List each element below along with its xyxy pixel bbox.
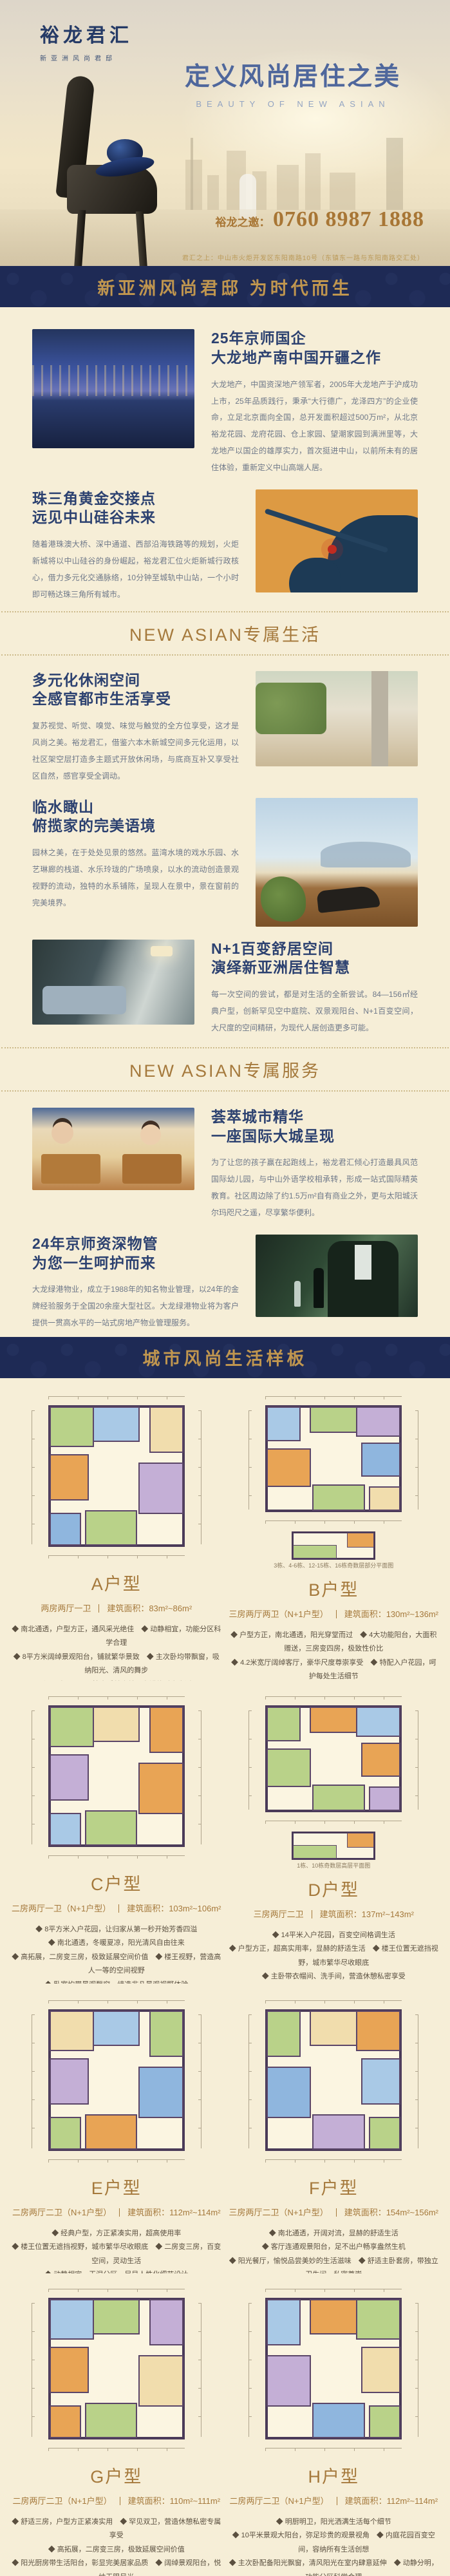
floorplan-card-g: G户型 二房两厅二卫（N+1户型）建筑面积：110m²~111m² ◆ 舒适三房… [8, 2284, 225, 2576]
floorplan-image [26, 2284, 207, 2456]
floorplan-spec: 二房两厅一卫（N+1户型）建筑面积：103m²~106m² [8, 1902, 225, 1914]
floorplan-name: C户型 [8, 1870, 225, 1895]
floorplan-mini-image [292, 1531, 375, 1560]
hero-section: 裕龙君汇 新亚洲风尚君邸 定义风尚居住之美 BEAUTY OF NEW ASIA… [0, 0, 450, 266]
floorplan-card-c: C户型 二房两厅一卫（N+1户型）建筑面积：103m²~106m² ◆ 8平方米… [8, 1691, 225, 1984]
floorplan-name: H户型 [225, 2463, 443, 2488]
floorplan-spec: 二房两厅二卫（N+1户型）建筑面积：110m²~111m² [8, 2494, 225, 2506]
floorplan-name: F户型 [225, 2174, 443, 2199]
photo-courtyard [256, 671, 418, 766]
section-property-service: 24年京师资深物管为您一生呵护而来 大龙绿港物业，成立于1988年的知名物业管理… [0, 1222, 450, 1332]
floorplan-row-cd: C户型 二房两厅一卫（N+1户型）建筑面积：103m²~106m² ◆ 8平方米… [0, 1681, 450, 1984]
floorplan-image [243, 1995, 424, 2168]
photo-children-classroom [32, 1108, 194, 1190]
divider-life: NEW ASIAN专属生活 [0, 603, 450, 658]
floorplan-name: D户型 [225, 1876, 443, 1901]
floorplan-features: ◆ 明厨明卫，阳光洒满生活每个细节◆ 10平米景观大阳台，弥足珍贵的观景视角 ◆… [225, 2515, 443, 2576]
floorplan-row-gh: G户型 二房两厅二卫（N+1户型）建筑面积：110m²~111m² ◆ 舒适三房… [0, 2273, 450, 2576]
region-map-image [256, 489, 418, 592]
section-title: 荟萃城市精华一座国际大城呈现 [211, 1108, 418, 1146]
section-body: 为了让您的孩子赢在起跑线上，裕龙君汇倾心打造最具风范国际幼儿园，与中山外语学校相… [211, 1155, 418, 1221]
divider-title: NEW ASIAN专属生活 [0, 612, 450, 654]
banner-text: 城市风尚生活样板 [143, 1345, 308, 1370]
section-landscape: 临水瞰山俯揽家的完美语境 园林之美，在于处处见景的悠然。蓝湾水境的戏水乐园、水艺… [0, 785, 450, 927]
floorplan-row-ef: E户型 二房两厅二卫（N+1户型）建筑面积：112m²~114m² ◆ 经典户型… [0, 1984, 450, 2273]
floorplan-card-d: 1栋、10栋奇数层高层平面图 D户型 三房两厅二卫建筑面积：137m²~143m… [225, 1691, 443, 1984]
hero-subtitle: BEAUTY OF NEW ASIAN [164, 99, 422, 109]
photo-city-night [32, 329, 194, 448]
floorplan-image [26, 1995, 207, 2168]
section-space: N+1百变舒居空间演绎新亚洲居住智慧 每一次空间的尝试，都是对生活的全新尝试。8… [0, 927, 450, 1037]
floorplan-features: ◆ 户型方正，南北通透，阳光穿堂而过 ◆ 4大功能阳台，大面积赠送，三房变四房，… [225, 1629, 443, 1681]
floorplan-features: ◆ 南北通透，户型方正，通风采光绝佳 ◆ 动静相宜，功能分区科学合理◆ 8平方米… [8, 1623, 225, 1681]
floorplan-mini-image [292, 1832, 375, 1860]
photo-balcony-view [256, 798, 418, 927]
poster-page: 裕龙君汇 新亚洲风尚君邸 定义风尚居住之美 BEAUTY OF NEW ASIA… [0, 0, 450, 2576]
brand-tagline: 新亚洲风尚君邸 [40, 53, 133, 62]
floorplan-features: ◆ 舒适三房，户型方正紧凑实用 ◆ 罕见双卫，营造休憩私密专属享受◆ 高拓展，二… [8, 2515, 225, 2576]
section-title: 24年京师资深物管为您一生呵护而来 [32, 1235, 239, 1273]
section-body: 园林之美，在于处处见景的悠然。蓝湾水境的戏水乐园、水艺琳廊的栈道、水乐玲珑的广场… [32, 845, 239, 911]
floorplan-name: E户型 [8, 2174, 225, 2199]
phone-block: 裕龙之邀： 0760 8987 1888 [216, 207, 424, 232]
floorplan-features: ◆ 8平方米入户花园，让归家从第一秒开始芳香四溢◆ 南北通透，冬暖夏凉，阳光清风… [8, 1923, 225, 1984]
banner-new-asian: 新亚洲风尚君邸 为时代而生 [0, 266, 450, 307]
phone-number: 0760 8987 1888 [273, 207, 424, 231]
floorplan-card-a: A户型 两房两厅一卫建筑面积：83m²~86m² ◆ 南北通透，户型方正，通风采… [8, 1391, 225, 1681]
floorplan-card-h: H户型 二房两厅二卫（N+1户型）建筑面积：112m²~114m² ◆ 明厨明卫… [225, 2284, 443, 2576]
map-location-dot [328, 545, 337, 554]
floorplan-card-b: 3栋、4-6栋、12-15栋、16栋奇数层部分平面图 B户型 三房两厅两卫（N+… [225, 1391, 443, 1681]
banner-text: 新亚洲风尚君邸 为时代而生 [97, 274, 353, 299]
section-title: 临水瞰山俯揽家的完美语境 [32, 798, 239, 837]
section-title: 25年京师国企大龙地产南中国开疆之作 [211, 329, 418, 368]
phone-label: 裕龙之邀： [216, 216, 270, 229]
floorplan-image [26, 1391, 207, 1564]
section-title: N+1百变舒居空间演绎新亚洲居住智慧 [211, 940, 418, 978]
floorplan-spec: 二房两厅二卫（N+1户型）建筑面积：112m²~114m² [8, 2206, 225, 2218]
section-body: 每一次空间的尝试，都是对生活的全新尝试。84—156㎡经典户型，创新罕见空中庭院… [211, 987, 418, 1036]
floorplan-spec: 三房两厅二卫（N+1户型）建筑面积：154m²~156m² [225, 2206, 443, 2218]
floorplan-note: 1栋、10栋奇数层高层平面图 [225, 1861, 443, 1870]
photo-living-room [32, 940, 194, 1025]
floorplan-row-ab: A户型 两房两厅一卫建筑面积：83m²~86m² ◆ 南北通透，户型方正，通风采… [0, 1378, 450, 1681]
floorplan-image [243, 1391, 424, 1529]
section-body: 大龙绿港物业，成立于1988年的知名物业管理，以24年的金牌经验服务于全国20余… [32, 1282, 239, 1331]
divider-title: NEW ASIAN专属服务 [0, 1048, 450, 1090]
brand-logo: 裕龙君汇 新亚洲风尚君邸 [40, 19, 133, 62]
floorplan-name: A户型 [8, 1570, 225, 1595]
floorplan-spec: 两房两厅一卫建筑面积：83m²~86m² [8, 1602, 225, 1614]
floorplan-features: ◆ 14平米入户花园，百变空间格调生活◆ 户型方正，超高实用率，显赫的舒适生活 … [225, 1929, 443, 1984]
hero-title: 定义风尚居住之美 [164, 57, 422, 93]
dotted-line [1, 1090, 449, 1092]
floorplan-features: ◆ 南北通透，开阔对流，显赫的舒适生活◆ 客厅连通观景阳台，足不出户畅享盎然生机… [225, 2227, 443, 2273]
section-title: 多元化休闲空间全感官都市生活享受 [32, 671, 239, 710]
floorplan-image [26, 1691, 207, 1864]
section-body: 大龙地产，中国资深地产领军者，2005年大龙地产于沪成功上市，25年品质践行，秉… [211, 377, 418, 477]
brand-name: 裕龙君汇 [40, 19, 133, 48]
floorplan-spec: 三房两厅二卫建筑面积：137m²~143m² [225, 1908, 443, 1920]
chair-illustration [62, 76, 165, 256]
section-leisure: 多元化休闲空间全感官都市生活享受 复苏视觉、听觉、嗅觉、味觉与触觉的全方位享受，… [0, 658, 450, 785]
section-education: 荟萃城市精华一座国际大城呈现 为了让您的孩子赢在起跑线上，裕龙君汇倾心打造最具风… [0, 1095, 450, 1222]
section-body: 随着港珠澳大桥、深中通道、西部沿海铁路等的规划，火炬新城将以中山硅谷的身份崛起，… [32, 536, 239, 603]
floorplan-spec: 二房两厅二卫（N+1户型）建筑面积：112m²~114m² [225, 2494, 443, 2506]
floorplan-note: 3栋、4-6栋、12-15栋、16栋奇数层部分平面图 [225, 1561, 443, 1569]
blue-hat-illustration [95, 139, 155, 175]
section-location: 珠三角黄金交接点远见中山硅谷未来 随着港珠澳大桥、深中通道、西部沿海铁路等的规划… [0, 477, 450, 603]
floorplan-name: B户型 [225, 1576, 443, 1601]
section-developer: 25年京师国企大龙地产南中国开疆之作 大龙地产，中国资深地产领军者，2005年大… [0, 307, 450, 477]
banner2-wrap: 城市风尚生活样板 [0, 1332, 450, 1378]
section-body: 复苏视觉、听觉、嗅觉、味觉与触觉的全方位享受，这才是风尚之美。裕龙君汇，借鉴六本… [32, 718, 239, 784]
floorplan-card-f: F户型 三房两厅二卫（N+1户型）建筑面积：154m²~156m² ◆ 南北通透… [225, 1995, 443, 2273]
hero-title-block: 定义风尚居住之美 BEAUTY OF NEW ASIAN [164, 57, 422, 109]
section-title: 珠三角黄金交接点远见中山硅谷未来 [32, 489, 239, 528]
floorplan-image [243, 2284, 424, 2456]
project-address: 君汇之上：中山市火炬开发区东阳南路10号（东镇东一路与东阳南路交汇处） [182, 252, 424, 262]
floorplan-features: ◆ 经典户型，方正紧凑实用，超高使用率◆ 楼王位置无遮挡视野，城市繁华尽收眼底 … [8, 2227, 225, 2273]
dotted-line [1, 654, 449, 656]
divider-service: NEW ASIAN专属服务 [0, 1037, 450, 1095]
photo-butler [256, 1235, 418, 1317]
banner-floorplans: 城市风尚生活样板 [0, 1337, 450, 1378]
floorplan-card-e: E户型 二房两厅二卫（N+1户型）建筑面积：112m²~114m² ◆ 经典户型… [8, 1995, 225, 2273]
floorplan-image [243, 1691, 424, 1829]
floorplan-name: G户型 [8, 2463, 225, 2488]
floorplan-spec: 三房两厅两卫（N+1户型）建筑面积：130m²~136m² [225, 1607, 443, 1620]
